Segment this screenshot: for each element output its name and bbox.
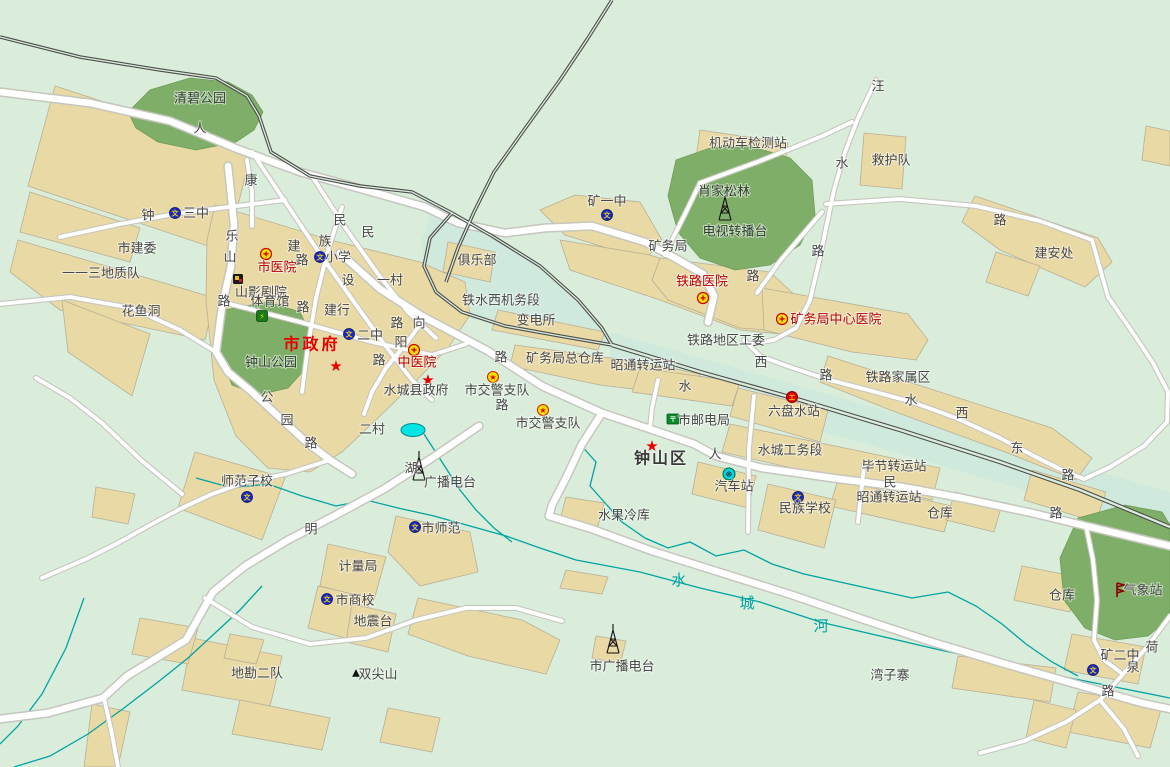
city-map-canvas[interactable]: 文文文文文文文文文✚✚✚✚★★★★★⚡☸〒工▲ 清碧公园人康钟三中市建委一一三地… xyxy=(0,0,1170,767)
map-label: 变电所 xyxy=(516,313,555,329)
hospital-icon: ✚ xyxy=(698,293,709,304)
school-icon: 文 xyxy=(315,252,326,263)
map-label: 矿务局总仓库 xyxy=(526,351,604,367)
map-label: 昭通转运站 xyxy=(610,359,675,374)
svg-text:✚: ✚ xyxy=(263,251,269,259)
map-label: 水果冷库 xyxy=(598,508,650,524)
map-label: 康 xyxy=(244,173,257,189)
police-icon: ★ xyxy=(538,405,549,416)
svg-text:文: 文 xyxy=(1090,666,1098,675)
star-icon: ★ xyxy=(329,357,342,375)
sport-icon: ⚡ xyxy=(257,311,268,322)
map-label: 仓库 xyxy=(1049,588,1075,604)
map-label: 地震台 xyxy=(353,615,392,630)
svg-text:☸: ☸ xyxy=(725,470,732,479)
map-label: 水城工务段 xyxy=(757,443,822,459)
school-icon: 文 xyxy=(602,210,613,221)
map-label: 路 xyxy=(390,316,403,332)
map-label: 矿务局 xyxy=(648,239,687,255)
map-label: 地勘二队 xyxy=(231,667,283,682)
map-label: 湖 xyxy=(404,462,417,477)
map-label: 电视转播台 xyxy=(702,225,767,240)
map-label: 市邮电局 xyxy=(678,413,730,429)
map-label: 气象站 xyxy=(1123,583,1162,599)
map-label: 昭通转运站 xyxy=(856,491,921,506)
map-label: 路 xyxy=(1049,506,1062,522)
map-label: 矿务局中心医院 xyxy=(790,312,881,328)
map-label: 路 xyxy=(372,353,385,369)
map-label: 园 xyxy=(280,414,293,429)
map-svg: 文文文文文文文文文✚✚✚✚★★★★★⚡☸〒工▲ 清碧公园人康钟三中市建委一一三地… xyxy=(0,0,1170,767)
map-label: 路 xyxy=(295,253,308,269)
map-label: 民 xyxy=(883,476,896,491)
map-label: 一村 xyxy=(377,274,403,289)
map-label: 小学 xyxy=(325,250,351,266)
map-label: 市商校 xyxy=(335,593,374,609)
school-icon: 文 xyxy=(1088,665,1099,676)
map-label: 明 xyxy=(304,523,317,538)
map-label: 族 xyxy=(318,234,331,250)
building-block xyxy=(1142,126,1170,166)
map-label: 人 xyxy=(708,448,721,463)
svg-text:★: ★ xyxy=(539,406,546,415)
svg-text:文: 文 xyxy=(412,523,420,532)
map-label: 市建委 xyxy=(117,241,156,257)
map-label: 一一三地质队 xyxy=(62,267,140,282)
map-label: 湾子寨 xyxy=(870,668,909,684)
map-label: 建行 xyxy=(324,304,350,319)
map-label: 路 xyxy=(993,213,1006,229)
map-label: 市师范 xyxy=(421,521,460,537)
svg-text:✚: ✚ xyxy=(700,295,706,303)
map-label: 路 xyxy=(494,350,507,366)
building-block xyxy=(92,487,135,524)
map-label: 泉 xyxy=(1126,660,1139,676)
lake-layer xyxy=(401,424,425,437)
svg-text:★: ★ xyxy=(489,373,496,382)
map-label: 民 xyxy=(333,214,346,229)
school-icon: 文 xyxy=(322,594,333,605)
map-label: 救护队 xyxy=(871,153,910,169)
map-label: 路 xyxy=(1101,684,1114,700)
map-label: 毕节转运站 xyxy=(861,460,926,475)
map-label: 设 xyxy=(341,274,354,289)
map-label: 荷 xyxy=(1145,641,1158,656)
map-label: 二村 xyxy=(359,423,385,438)
map-label: 汪 xyxy=(871,80,884,95)
svg-text:文: 文 xyxy=(795,493,803,502)
map-label: 建安处 xyxy=(1034,247,1073,262)
svg-text:⚡: ⚡ xyxy=(259,312,265,321)
map-label: 市广播电台 xyxy=(589,659,654,675)
map-label: 民族学校 xyxy=(779,501,831,517)
police-icon: ★ xyxy=(488,372,499,383)
map-label: 俱乐部 xyxy=(457,254,496,269)
svg-text:文: 文 xyxy=(317,253,325,262)
map-label: 路 xyxy=(296,300,309,316)
map-label: 路 xyxy=(217,294,230,310)
map-label: 水 xyxy=(904,394,917,409)
school-icon: 文 xyxy=(170,208,181,219)
map-label: 铁路地区工委 xyxy=(687,333,765,349)
map-label: 师范子校 xyxy=(221,474,273,490)
railstation-icon: 工 xyxy=(787,392,798,403)
map-label: 钟山区 xyxy=(634,449,688,468)
school-icon: 文 xyxy=(242,492,253,503)
hospital-icon: ✚ xyxy=(261,249,272,260)
map-label: 计量局 xyxy=(338,560,377,575)
map-label: 乐 xyxy=(225,230,238,245)
map-label: 肖家松林 xyxy=(698,184,750,200)
cinema-icon xyxy=(233,274,243,284)
map-label: 汽车站 xyxy=(714,479,753,495)
map-label: 路 xyxy=(495,398,508,414)
svg-text:文: 文 xyxy=(604,211,612,220)
map-label: 人 xyxy=(193,122,206,137)
map-label: 向 xyxy=(412,316,425,332)
map-label: 阳 xyxy=(394,336,407,351)
map-label: 东 xyxy=(1010,442,1023,457)
svg-text:文: 文 xyxy=(324,595,332,604)
map-label: 三中 xyxy=(183,207,209,222)
map-label: 铁路医院 xyxy=(676,274,728,290)
map-label: 建 xyxy=(287,240,300,255)
map-label: 机动车检测站 xyxy=(709,136,787,152)
map-label: 广播电台 xyxy=(424,476,476,491)
map-label: 路 xyxy=(819,368,832,384)
map-label: 山 xyxy=(223,251,236,266)
map-label: 民 xyxy=(361,226,374,241)
map-label: 水 xyxy=(671,571,686,589)
map-label: 二中 xyxy=(357,329,383,344)
svg-text:文: 文 xyxy=(172,209,180,218)
map-label: 路 xyxy=(1061,468,1074,484)
map-label: 市交警支队 xyxy=(515,416,580,432)
map-label: 路 xyxy=(811,244,824,260)
svg-text:✚: ✚ xyxy=(779,316,785,324)
map-label: 路 xyxy=(746,269,759,285)
svg-text:文: 文 xyxy=(346,330,354,339)
svg-text:★: ★ xyxy=(329,357,342,375)
map-label: 钟山公园 xyxy=(245,355,297,371)
map-label: 水 xyxy=(678,380,691,395)
map-label: 花鱼洞 xyxy=(121,304,160,320)
map-label: 市政府 xyxy=(283,335,340,354)
map-label: 六盘水站 xyxy=(768,404,820,420)
map-label: 西 xyxy=(754,356,767,371)
map-label: 市交警支队 xyxy=(464,383,529,399)
bus-icon: ☸ xyxy=(723,468,735,480)
hospital-icon: ✚ xyxy=(777,314,788,325)
map-label: 市医院 xyxy=(257,260,296,276)
map-label: 河 xyxy=(813,617,828,635)
map-label: 清碧公园 xyxy=(174,92,226,107)
map-label: 钟 xyxy=(141,208,154,224)
map-label: 水 xyxy=(835,157,848,172)
lake xyxy=(401,424,425,437)
svg-text:〒: 〒 xyxy=(670,416,677,424)
school-icon: 文 xyxy=(410,522,421,533)
map-label: 体育馆 xyxy=(250,294,289,310)
map-label: 路 xyxy=(304,436,317,452)
map-label: 西 xyxy=(955,407,968,422)
svg-text:工: 工 xyxy=(789,394,796,402)
school-icon: 文 xyxy=(344,329,355,340)
map-label: 铁路家属区 xyxy=(865,370,930,386)
map-label: 公 xyxy=(260,391,273,406)
map-label: 铁水西机务段 xyxy=(462,293,540,309)
map-label: 仓库 xyxy=(927,506,953,522)
map-label: 矿一中 xyxy=(587,195,626,210)
hospital-icon: ✚ xyxy=(409,345,420,356)
svg-text:✚: ✚ xyxy=(411,347,417,355)
map-label: 城 xyxy=(739,594,754,612)
map-label: 中医院 xyxy=(397,356,436,371)
map-label: 水城县政府 xyxy=(383,384,448,399)
svg-text:文: 文 xyxy=(244,493,252,502)
map-label: 双尖山 xyxy=(358,668,397,683)
